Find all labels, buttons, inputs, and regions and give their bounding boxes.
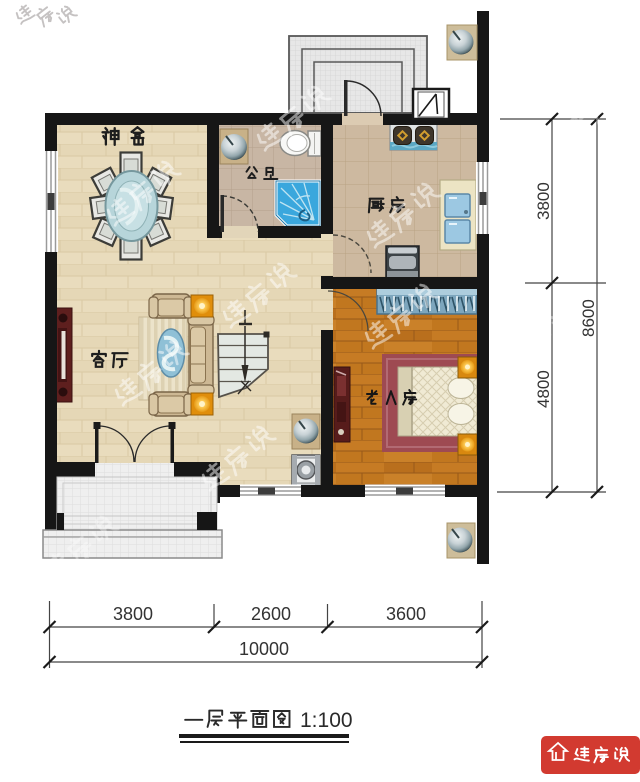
svg-text:4800: 4800 xyxy=(534,370,553,408)
svg-text:1:100: 1:100 xyxy=(300,709,353,732)
svg-text:2600: 2600 xyxy=(251,604,291,624)
svg-text:3800: 3800 xyxy=(113,604,153,624)
svg-text:8600: 8600 xyxy=(579,299,598,337)
svg-text:10000: 10000 xyxy=(239,639,289,659)
svg-text:3800: 3800 xyxy=(534,182,553,220)
svg-text:3600: 3600 xyxy=(386,604,426,624)
